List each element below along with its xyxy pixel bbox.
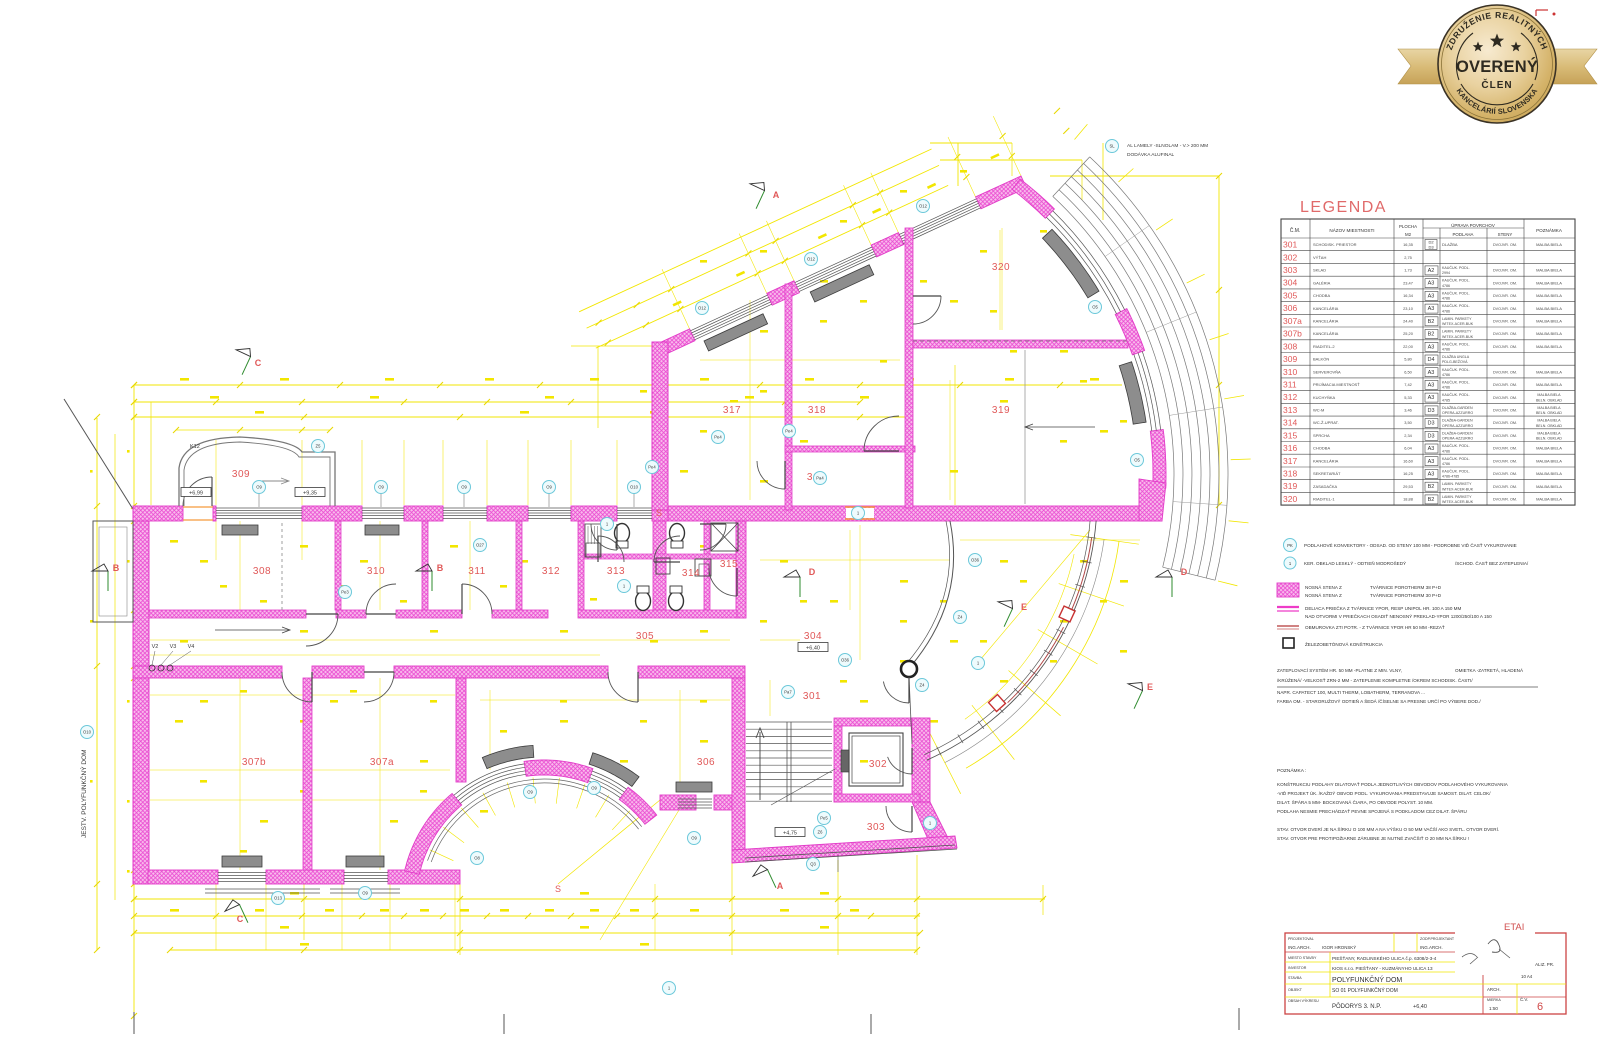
svg-text:SCHODISK. PRIESTOR: SCHODISK. PRIESTOR (1313, 242, 1357, 247)
svg-text:OMIETKA -ZATRETÁ, HLADENÁ: OMIETKA -ZATRETÁ, HLADENÁ (1455, 667, 1524, 673)
svg-text:POLYFUNKČNÝ DOM: POLYFUNKČNÝ DOM (1332, 975, 1402, 984)
svg-text:O9: O9 (378, 485, 384, 490)
svg-text:MALBA BIELA: MALBA BIELA (1536, 497, 1562, 502)
svg-text:A3: A3 (1428, 306, 1435, 312)
svg-text:STENY: STENY (1498, 232, 1513, 237)
svg-text:KAUČUK. PODL.: KAUČUK. PODL. (1442, 341, 1470, 346)
svg-text:316: 316 (1283, 443, 1297, 453)
svg-text:KAUČUK. PODL.: KAUČUK. PODL. (1442, 380, 1470, 385)
svg-text:SKLAD: SKLAD (1313, 268, 1326, 273)
svg-text:ING.ARCH.: ING.ARCH. (1420, 945, 1443, 950)
svg-text:Pe4: Pe4 (648, 465, 656, 470)
svg-text:ING.ARCH.: ING.ARCH. (1288, 945, 1311, 950)
svg-text:DLAŽBA-GARDEN: DLAŽBA-GARDEN (1442, 418, 1473, 423)
svg-text:NÁZOV MIESTNOSTI: NÁZOV MIESTNOSTI (1329, 227, 1374, 233)
svg-text:308: 308 (1283, 341, 1297, 351)
svg-text:O9: O9 (691, 836, 697, 841)
svg-text:OPERA-AZZURRO: OPERA-AZZURRO (1442, 411, 1473, 415)
svg-text:B2: B2 (1428, 497, 1435, 503)
svg-text:PDLG-BEŽOVÁ: PDLG-BEŽOVÁ (1442, 359, 1468, 364)
svg-text:23,47: 23,47 (1403, 280, 1413, 285)
svg-text:KAUČUK. PODL.: KAUČUK. PODL. (1442, 367, 1470, 372)
svg-text:DVOJVR. OM.: DVOJVR. OM. (1493, 459, 1517, 463)
svg-text:OPERA-AZZURRO: OPERA-AZZURRO (1442, 424, 1473, 428)
svg-text:O9: O9 (527, 790, 533, 795)
svg-text:306: 306 (1283, 303, 1297, 313)
svg-text:DLAŽBA: DLAŽBA (1442, 242, 1458, 247)
svg-text:KAUČUK. PODL.: KAUČUK. PODL. (1442, 290, 1470, 295)
svg-text:A: A (773, 190, 780, 200)
svg-text:6: 6 (1537, 1001, 1543, 1013)
svg-text:315: 315 (1283, 430, 1297, 440)
svg-text:SL: SL (1109, 144, 1115, 149)
svg-text:BELN. OBKLAD: BELN. OBKLAD (1536, 411, 1562, 415)
svg-text:309: 309 (1283, 354, 1297, 364)
svg-text:311: 311 (1283, 380, 1297, 390)
svg-text:MALBA BIELA: MALBA BIELA (1536, 331, 1562, 336)
svg-text:O12: O12 (919, 204, 928, 209)
svg-text:KAUČUK. PODL.: KAUČUK. PODL. (1442, 469, 1470, 474)
svg-text:DODÁVKA ALUFINAL: DODÁVKA ALUFINAL (1127, 151, 1175, 158)
svg-text:ZASADAČKA: ZASADAČKA (1313, 484, 1338, 489)
svg-text:Q3: Q3 (810, 862, 816, 867)
svg-text:-VIĎ PROJEKT ÚK. /KAŽDÝ OBVOD: -VIĎ PROJEKT ÚK. /KAŽDÝ OBVOD PODL. VYKU… (1277, 789, 1491, 796)
svg-text:MALBA BIELA: MALBA BIELA (1536, 344, 1562, 349)
svg-text:O9: O9 (546, 485, 552, 490)
svg-text:D3: D3 (1428, 245, 1434, 250)
svg-text:A3: A3 (1428, 459, 1435, 465)
svg-text:MALBA BIELA: MALBA BIELA (1537, 431, 1561, 435)
svg-text:MALBA BIELA: MALBA BIELA (1537, 419, 1561, 423)
svg-text:303: 303 (867, 822, 885, 833)
svg-text:Pe4: Pe4 (785, 429, 793, 434)
svg-text:+4,75: +4,75 (783, 831, 797, 837)
svg-text:5,80: 5,80 (1404, 357, 1412, 362)
svg-text:RIADITEL-1: RIADITEL-1 (1313, 497, 1335, 502)
svg-text:6,04: 6,04 (1404, 446, 1412, 451)
svg-text:ZODP.PROJEKTANT: ZODP.PROJEKTANT (1420, 937, 1455, 941)
svg-text:PODLAHA NESMIE PRECHÁDZAŤ PEVN: PODLAHA NESMIE PRECHÁDZAŤ PEVNE SPOJENÁ … (1277, 807, 1467, 814)
svg-text:BELN. OBKLAD: BELN. OBKLAD (1536, 398, 1562, 402)
svg-text:LAMIN. PARKETY: LAMIN. PARKETY (1442, 495, 1472, 499)
svg-text:16,35: 16,35 (1403, 242, 1413, 247)
svg-text:Pe3: Pe3 (341, 590, 349, 595)
svg-text:DVOJVR. OM.: DVOJVR. OM. (1493, 409, 1517, 413)
svg-text:A2: A2 (1428, 268, 1435, 274)
svg-text:DVOJVR. OM.: DVOJVR. OM. (1493, 472, 1517, 476)
svg-text:4786: 4786 (1442, 449, 1450, 453)
svg-text:MALBA BIELA: MALBA BIELA (1536, 369, 1562, 374)
svg-text:NOSNÁ STENA Z: NOSNÁ STENA Z (1305, 584, 1342, 590)
svg-text:DVOJVR. OM.: DVOJVR. OM. (1493, 243, 1517, 247)
svg-text:JESTV. POLYFUNKČNÝ DOM: JESTV. POLYFUNKČNÝ DOM (79, 750, 88, 839)
svg-text:S: S (656, 508, 662, 518)
svg-text:KER. OBKLAD LESKLÝ - ODTIEŇ MO: KER. OBKLAD LESKLÝ - ODTIEŇ MODROŠEDÝ (1304, 560, 1406, 566)
svg-text:DELIACA PRIEČKA Z TVÁRNICE YPO: DELIACA PRIEČKA Z TVÁRNICE YPOR, RESP UN… (1305, 605, 1462, 611)
svg-text:307b: 307b (1283, 329, 1302, 339)
svg-text:NAPR. CAPATECT 100, MULTI THER: NAPR. CAPATECT 100, MULTI THERM, LOBATHE… (1277, 690, 1425, 695)
svg-text:308: 308 (253, 566, 271, 577)
svg-text:MALBA BIELA: MALBA BIELA (1536, 280, 1562, 285)
svg-text:POZNÁMKA: POZNÁMKA (1536, 227, 1563, 233)
svg-text:5,33: 5,33 (1404, 395, 1412, 400)
svg-text:307a: 307a (1283, 316, 1302, 326)
svg-text:/KRÚŽENÁ/ -VELKOSŤ ZRN-2 MM -: /KRÚŽENÁ/ -VELKOSŤ ZRN-2 MM - ZATEPLENIE… (1277, 676, 1473, 683)
svg-text:NAD OTVORMI V PRIEČKACH OSADIŤ: NAD OTVORMI V PRIEČKACH OSADIŤ NENOSNÝ P… (1305, 612, 1492, 619)
svg-text:24,40: 24,40 (1403, 319, 1414, 324)
svg-text:16,34: 16,34 (1403, 293, 1414, 298)
svg-text:Pe4: Pe4 (714, 435, 722, 440)
svg-text:Č.V.: Č.V. (1520, 997, 1528, 1002)
svg-text:DVOJVR. OM.: DVOJVR. OM. (1493, 434, 1517, 438)
svg-text:319: 319 (992, 405, 1010, 416)
svg-text:301: 301 (1283, 240, 1297, 250)
svg-text:A3: A3 (1428, 446, 1435, 452)
svg-text:A3: A3 (1428, 293, 1435, 299)
svg-text:303: 303 (1283, 265, 1297, 275)
svg-text:23,10: 23,10 (1403, 306, 1414, 311)
svg-text:OVERENÝ: OVERENÝ (1456, 57, 1538, 76)
svg-text:K12: K12 (190, 444, 200, 450)
svg-text:WITEX-ACER-BUK: WITEX-ACER-BUK (1442, 335, 1474, 339)
svg-text:4786: 4786 (1442, 373, 1450, 377)
svg-text:22,00: 22,00 (1403, 344, 1414, 349)
svg-text:MIESTO STAVBY: MIESTO STAVBY (1288, 956, 1317, 960)
svg-text:ŽELEZOBETÓNOVÁ KONŠTRUKCIA: ŽELEZOBETÓNOVÁ KONŠTRUKCIA (1305, 640, 1384, 647)
svg-text:OBSAH VÝKRESU: OBSAH VÝKRESU (1288, 999, 1319, 1003)
svg-text:318: 318 (1283, 469, 1297, 479)
svg-text:OBMUROVKA ZTI POTR. - Z TVÁRNI: OBMUROVKA ZTI POTR. - Z TVÁRNICE YPOR HR… (1305, 623, 1445, 630)
svg-text:NOSNÁ STENA Z: NOSNÁ STENA Z (1305, 592, 1342, 598)
svg-text:SO 01 POLYFUNKČNÝ DOM: SO 01 POLYFUNKČNÝ DOM (1332, 987, 1398, 994)
svg-text:302: 302 (1283, 252, 1297, 262)
svg-text:304: 304 (1283, 278, 1297, 288)
svg-text:320: 320 (1283, 494, 1297, 504)
svg-text:V2: V2 (152, 644, 159, 650)
svg-text:O5: O5 (1134, 458, 1140, 463)
svg-text:302: 302 (869, 759, 887, 770)
svg-text:KAUČUK. PODL.: KAUČUK. PODL. (1442, 265, 1470, 270)
svg-text:PODLAHA: PODLAHA (1453, 232, 1474, 237)
svg-text:311: 311 (468, 566, 485, 577)
svg-text:O8: O8 (474, 856, 480, 861)
svg-text:317: 317 (1283, 456, 1297, 466)
svg-text:LAMIN. PARKETY: LAMIN. PARKETY (1442, 317, 1472, 321)
svg-text:305: 305 (636, 631, 654, 642)
svg-text:DILAT. ŠPÁRA 5 MM- BOCKOVANÁ Č: DILAT. ŠPÁRA 5 MM- BOCKOVANÁ ČIARA, PO O… (1277, 799, 1433, 805)
svg-text:E: E (1147, 682, 1153, 692)
svg-text:O12: O12 (807, 257, 816, 262)
svg-text:KANCELÁRIA: KANCELÁRIA (1313, 319, 1339, 324)
svg-text:B2: B2 (1428, 319, 1435, 325)
svg-text:KAUČUK. PODL.: KAUČUK. PODL. (1442, 443, 1470, 448)
svg-text:POZNÁMKA :: POZNÁMKA : (1277, 767, 1306, 774)
svg-text:KANCELÁRIA: KANCELÁRIA (1313, 306, 1339, 311)
svg-text:A3: A3 (1428, 281, 1435, 287)
svg-text:STAV. OTVOR PRE PROTIPOŽIARNE: STAV. OTVOR PRE PROTIPOŽIARNE ZÁRUBNE JE… (1277, 834, 1469, 841)
svg-text:319: 319 (1283, 481, 1297, 491)
svg-text:WITEX-ACER-BUK: WITEX-ACER-BUK (1442, 322, 1474, 326)
svg-text:317: 317 (723, 405, 741, 416)
svg-text:ČLEN: ČLEN (1481, 78, 1512, 91)
svg-text:O27: O27 (476, 543, 485, 548)
svg-text:DVOJVR. OM.: DVOJVR. OM. (1493, 498, 1517, 502)
svg-text:MALBA BIELA: MALBA BIELA (1536, 446, 1562, 451)
svg-text:B: B (113, 563, 120, 573)
svg-text:BELN. OBKLAD: BELN. OBKLAD (1536, 424, 1562, 428)
svg-text:WC-M: WC-M (1313, 408, 1324, 413)
svg-text:MALBA BIELA: MALBA BIELA (1536, 458, 1562, 463)
svg-text:/SCHOD. ČASŤ BEZ ZATEPLENIA/: /SCHOD. ČASŤ BEZ ZATEPLENIA/ (1455, 559, 1529, 566)
svg-text:O36: O36 (841, 658, 850, 663)
svg-text:GALÉRIA: GALÉRIA (1313, 280, 1331, 285)
svg-text:C: C (255, 358, 262, 368)
svg-text:A3: A3 (1428, 383, 1435, 389)
svg-text:KAUČUK. PODL.: KAUČUK. PODL. (1442, 392, 1470, 397)
svg-text:2,75: 2,75 (1404, 255, 1412, 260)
svg-text:318: 318 (808, 405, 826, 416)
svg-text:LAMIN. PARKETY: LAMIN. PARKETY (1442, 330, 1472, 334)
svg-text:C: C (237, 914, 244, 924)
svg-text:312: 312 (1283, 392, 1297, 402)
svg-text:BALKÓN: BALKÓN (1313, 357, 1329, 362)
svg-text:B2: B2 (1428, 332, 1435, 338)
svg-text:DVOJVR. OM.: DVOJVR. OM. (1493, 383, 1517, 387)
svg-text:DLAŽBA-GARDEN: DLAŽBA-GARDEN (1442, 405, 1473, 410)
svg-text:OBJEKT: OBJEKT (1288, 988, 1303, 992)
svg-text:Pa7: Pa7 (784, 690, 792, 695)
svg-text:KAUČUK. PODL.: KAUČUK. PODL. (1442, 303, 1470, 308)
svg-text:V3: V3 (170, 644, 177, 650)
svg-text:Pa4: Pa4 (816, 476, 824, 481)
svg-text:FARBA OM. - STARORUŽOVÝ ODTIEŇ: FARBA OM. - STARORUŽOVÝ ODTIEŇ A ŠEDÁ /Č… (1277, 697, 1481, 704)
svg-text:313: 313 (607, 566, 625, 577)
svg-text:O12: O12 (698, 306, 707, 311)
svg-text:PIEŠŤANY, RADLINSKÉHO ULICA č.: PIEŠŤANY, RADLINSKÉHO ULICA č.p. 6308/2-… (1332, 954, 1437, 961)
svg-text:MALBA BIELA: MALBA BIELA (1536, 293, 1562, 298)
svg-text:A: A (777, 881, 784, 891)
svg-text:E: E (1021, 602, 1027, 612)
svg-text:6,50: 6,50 (1404, 369, 1412, 374)
svg-text:2,34: 2,34 (1404, 433, 1412, 438)
svg-text:3,46: 3,46 (1404, 408, 1412, 413)
svg-text:MALBA BIELA: MALBA BIELA (1536, 382, 1562, 387)
svg-text:4785: 4785 (1442, 398, 1450, 402)
svg-text:DVOJVR. OM.: DVOJVR. OM. (1493, 332, 1517, 336)
svg-text:4786: 4786 (1442, 284, 1450, 288)
svg-text:PLOCHA: PLOCHA (1399, 224, 1417, 229)
svg-text:Z5: Z5 (316, 444, 322, 449)
svg-text:B2: B2 (1428, 484, 1435, 490)
svg-text:+6,40: +6,40 (806, 646, 820, 652)
svg-text:WC-Ž-UPRAT.: WC-Ž-UPRAT. (1313, 420, 1339, 425)
svg-text:ÚPRAVA POVRCHOV: ÚPRAVA POVRCHOV (1451, 223, 1495, 228)
svg-text:STAV. OTVOR DVERÍ JE NA ŠÍRKU: STAV. OTVOR DVERÍ JE NA ŠÍRKU O 100 MM A… (1277, 826, 1499, 832)
svg-text:D: D (1181, 567, 1188, 577)
svg-text:KANCELÁRIA: KANCELÁRIA (1313, 331, 1339, 336)
svg-text:A3: A3 (1428, 395, 1435, 401)
svg-text:CHODBA: CHODBA (1313, 446, 1330, 451)
svg-text:DVOJVR. OM.: DVOJVR. OM. (1493, 396, 1517, 400)
svg-text:4786: 4786 (1442, 462, 1450, 466)
svg-text:INVESTOR: INVESTOR (1288, 966, 1307, 970)
svg-text:309: 309 (232, 469, 250, 480)
svg-text:SERVEROVŇA: SERVEROVŇA (1313, 369, 1341, 374)
svg-text:+6,40: +6,40 (1413, 1004, 1427, 1010)
svg-text:SPRCHA: SPRCHA (1313, 433, 1330, 438)
svg-text:DVOJVR. OM.: DVOJVR. OM. (1493, 345, 1517, 349)
svg-text:O9: O9 (591, 786, 597, 791)
svg-text:WITEX-ACER-BUK: WITEX-ACER-BUK (1442, 500, 1474, 504)
svg-text:29,53: 29,53 (1403, 484, 1413, 489)
svg-text:320: 320 (992, 262, 1010, 273)
svg-text:25,20: 25,20 (1403, 331, 1414, 336)
svg-text:A3: A3 (1428, 370, 1435, 376)
svg-text:DVOJVR. OM.: DVOJVR. OM. (1493, 281, 1517, 285)
svg-text:312: 312 (542, 566, 560, 577)
svg-text:MALBA BIELA: MALBA BIELA (1536, 471, 1562, 476)
svg-text:AL LAMELY -SLNOLAM - V.> 200 M: AL LAMELY -SLNOLAM - V.> 200 MM (1127, 143, 1208, 149)
svg-text:DLAŽBA-GARDEN: DLAŽBA-GARDEN (1442, 430, 1473, 435)
svg-text:PODLAHOVÉ KONVEKTORY - ODSAD.: PODLAHOVÉ KONVEKTORY - ODSAD. OD STENY 1… (1304, 541, 1517, 548)
svg-text:O5: O5 (1092, 305, 1098, 310)
svg-text:MALBA BIELA: MALBA BIELA (1536, 484, 1562, 489)
svg-text:MALBA BIELA: MALBA BIELA (1537, 393, 1561, 397)
svg-text:KAUČUK. PODL.: KAUČUK. PODL. (1442, 278, 1470, 283)
svg-text:CHODBA: CHODBA (1313, 293, 1330, 298)
svg-text:DLAŽBA UNGLA: DLAŽBA UNGLA (1442, 354, 1470, 359)
svg-text:16,60: 16,60 (1403, 458, 1414, 463)
svg-text:MALBA BIELA: MALBA BIELA (1536, 306, 1562, 311)
svg-text:7,42: 7,42 (1404, 382, 1412, 387)
svg-text:O9: O9 (461, 485, 467, 490)
svg-text:DVOJVR. OM.: DVOJVR. OM. (1493, 370, 1517, 374)
svg-text:307b: 307b (242, 757, 266, 768)
svg-text:OPERA-AZZURRO: OPERA-AZZURRO (1442, 437, 1473, 441)
svg-text:VÝŤAH: VÝŤAH (1313, 255, 1326, 260)
svg-text:A3: A3 (1428, 472, 1435, 478)
svg-text:4786: 4786 (1442, 386, 1450, 390)
svg-text:4786: 4786 (1442, 309, 1450, 313)
svg-text:305: 305 (1283, 290, 1297, 300)
svg-text:DVOJVR. OM.: DVOJVR. OM. (1493, 320, 1517, 324)
svg-text:IGOR HRONSKÝ: IGOR HRONSKÝ (1322, 945, 1356, 950)
svg-text:DVOJVR. OM.: DVOJVR. OM. (1493, 485, 1517, 489)
svg-text:PRIJÍMACIA MIESTNOSŤ: PRIJÍMACIA MIESTNOSŤ (1313, 382, 1360, 387)
svg-text:PROJEKTOVAL: PROJEKTOVAL (1288, 937, 1314, 941)
svg-text:WITEX-ACER-BUK: WITEX-ACER-BUK (1442, 487, 1474, 491)
svg-text:16,25: 16,25 (1403, 471, 1413, 476)
svg-text:KAUČUK. PODL.: KAUČUK. PODL. (1442, 456, 1470, 461)
svg-text:TVÁRNICE POROTHERM 30 P+D: TVÁRNICE POROTHERM 30 P+D (1370, 592, 1442, 598)
svg-text:Z6: Z6 (818, 830, 824, 835)
svg-text:MIERKA: MIERKA (1487, 998, 1501, 1002)
svg-text:O10: O10 (630, 485, 639, 490)
svg-text:307a: 307a (370, 757, 394, 768)
svg-text:314: 314 (1283, 418, 1297, 428)
svg-text:PÔDORYS 3. N.P.: PÔDORYS 3. N.P. (1332, 1003, 1381, 1010)
svg-text:O9: O9 (256, 485, 262, 490)
svg-text:Pe5: Pe5 (820, 816, 828, 821)
svg-text:313: 313 (1283, 405, 1297, 415)
svg-text:4786-4785: 4786-4785 (1442, 475, 1459, 479)
svg-text:MALBA BIELA: MALBA BIELA (1536, 242, 1562, 247)
svg-text:+9,35: +9,35 (303, 491, 317, 497)
svg-text:DVOJVR. OM.: DVOJVR. OM. (1493, 269, 1517, 273)
svg-text:4786: 4786 (1442, 348, 1450, 352)
svg-text:MALBA BIELA: MALBA BIELA (1536, 319, 1562, 324)
svg-text:D3: D3 (1427, 421, 1434, 427)
svg-text:Z4: Z4 (958, 615, 964, 620)
svg-text:306: 306 (697, 757, 715, 768)
svg-text:RIADITEL-2: RIADITEL-2 (1313, 344, 1335, 349)
svg-text:KONŠTRUKCIU PODLAHY DILATOVAŤ: KONŠTRUKCIU PODLAHY DILATOVAŤ PODLA JEDN… (1277, 780, 1509, 787)
svg-text:D: D (809, 567, 816, 577)
svg-text:LAMIN. PARKETY: LAMIN. PARKETY (1442, 482, 1472, 486)
svg-text:301: 301 (803, 691, 821, 702)
svg-text:BELN. OBKLAD: BELN. OBKLAD (1536, 437, 1562, 441)
svg-text:ZATEPLOVACÍ SYSTÉM HR. 50 MM -: ZATEPLOVACÍ SYSTÉM HR. 50 MM -PLATNE Z M… (1277, 667, 1402, 673)
svg-text:310: 310 (367, 566, 385, 577)
svg-text:PK: PK (1287, 543, 1293, 548)
svg-text:V4: V4 (188, 644, 195, 650)
svg-text:310: 310 (1283, 367, 1297, 377)
svg-text:314: 314 (682, 568, 700, 579)
svg-text:O9: O9 (362, 891, 368, 896)
svg-text:2994: 2994 (1442, 271, 1450, 275)
svg-text:MALBA BIELA: MALBA BIELA (1537, 406, 1561, 410)
svg-text:SEKRETARIÁT: SEKRETARIÁT (1313, 471, 1341, 476)
svg-text:KANCELÁRIA: KANCELÁRIA (1313, 458, 1339, 463)
svg-text:D4: D4 (1427, 357, 1434, 363)
svg-text:KIOS s.r.o. PIEŠŤANY - KUZMÁN: KIOS s.r.o. PIEŠŤANY - KUZMÁNYHO ULICA 1… (1332, 964, 1433, 971)
svg-text:304: 304 (804, 631, 822, 642)
svg-text:S: S (555, 884, 561, 894)
svg-text:ARCH.: ARCH. (1487, 987, 1501, 992)
svg-text:D3: D3 (1427, 433, 1434, 439)
svg-text:1:50: 1:50 (1489, 1006, 1498, 1011)
svg-text:M2: M2 (1405, 232, 1412, 237)
svg-text:O10: O10 (83, 730, 92, 735)
svg-text:DVOJVR. OM.: DVOJVR. OM. (1493, 447, 1517, 451)
svg-text:B: B (437, 563, 444, 573)
svg-text:MALBA BIELA: MALBA BIELA (1536, 268, 1562, 273)
svg-text:ETAI: ETAI (1504, 922, 1524, 933)
svg-text:315: 315 (720, 559, 738, 570)
svg-text:1,73: 1,73 (1404, 268, 1412, 273)
svg-text:D3: D3 (1427, 408, 1434, 414)
svg-text:4786: 4786 (1442, 297, 1450, 301)
svg-text:A3: A3 (1428, 344, 1435, 350)
svg-text:+6,99: +6,99 (189, 491, 203, 497)
svg-text:O13: O13 (274, 896, 283, 901)
svg-text:DVOJVR. OM.: DVOJVR. OM. (1493, 294, 1517, 298)
svg-text:O36: O36 (971, 558, 980, 563)
svg-text:3,50: 3,50 (1404, 420, 1412, 425)
svg-text:18,88: 18,88 (1403, 497, 1413, 502)
svg-text:TVÁRNICE POROTHERM 38 P+D: TVÁRNICE POROTHERM 38 P+D (1370, 584, 1442, 590)
svg-text:STAVBA: STAVBA (1288, 976, 1302, 980)
svg-text:Z4: Z4 (920, 683, 926, 688)
svg-text:DVOJVR. OM.: DVOJVR. OM. (1493, 307, 1517, 311)
svg-text:LEGENDA: LEGENDA (1300, 199, 1387, 216)
svg-text:DVOJVR. OM.: DVOJVR. OM. (1493, 421, 1517, 425)
svg-text:Č.M.: Č.M. (1290, 227, 1301, 234)
svg-text:KUCHYŇKA: KUCHYŇKA (1313, 395, 1336, 400)
